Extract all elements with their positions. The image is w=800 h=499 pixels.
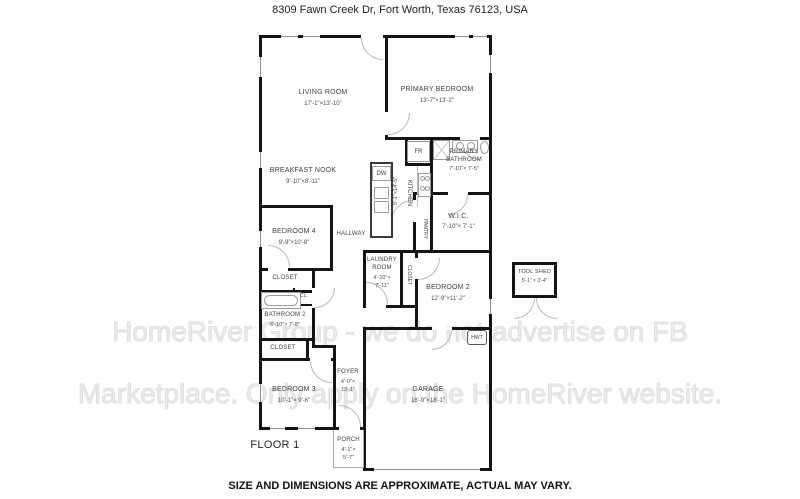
door-arc bbox=[315, 288, 335, 308]
burner-icon bbox=[425, 176, 430, 181]
window bbox=[455, 35, 469, 38]
room-label-laundry: LAUNDRY ROOM bbox=[362, 256, 402, 272]
cabinet bbox=[374, 187, 389, 199]
door-arc bbox=[268, 245, 290, 267]
room-dims-bathroom2: 6'-10"× 7'-8" bbox=[256, 321, 314, 329]
room-label-breakfast-nook: BREAKFAST NOOK bbox=[253, 166, 353, 177]
watermark-line1: HomeRiver Group - we do not advertise on… bbox=[112, 316, 688, 347]
door-arc bbox=[361, 38, 383, 60]
room-dims-porch: 4'-1"× 5'-7" bbox=[333, 446, 364, 463]
door-gap bbox=[366, 305, 386, 308]
garage-door bbox=[374, 468, 480, 471]
room-dims-wic: 7'-10"× 7'-1" bbox=[430, 223, 487, 232]
bathtub-inner bbox=[264, 295, 298, 306]
door-gap bbox=[268, 268, 288, 271]
room-dims-primary-bedroom: 13'-7"×13'-2" bbox=[387, 97, 487, 106]
room-label-closet-bedroom3: CLOSET bbox=[259, 344, 307, 353]
room-label-garage: GARAGE bbox=[378, 385, 478, 396]
address-title: 8309 Fawn Creek Dr, Fort Worth, Texas 76… bbox=[0, 4, 800, 16]
cabinet bbox=[374, 201, 389, 213]
room-label-foyer: FOYER bbox=[334, 368, 362, 377]
room-dims-tool-shed: 5'-1" × 3'-4" bbox=[512, 278, 557, 286]
floor-label: FLOOR 1 bbox=[240, 439, 310, 451]
room-label-pantry: PANTRY bbox=[420, 212, 428, 246]
room-dims-bedroom2: 12'-9"×11'-2" bbox=[398, 295, 498, 304]
room-dims-garage: 16'-9"×18'-1" bbox=[378, 397, 478, 406]
refrigerator: FR bbox=[407, 141, 430, 162]
room-dims-breakfast-nook: 9'-10"×8'-11" bbox=[253, 178, 353, 187]
wall bbox=[489, 35, 492, 471]
room-label-primary-bathroom: PRIMARY BATHROOM bbox=[439, 148, 489, 164]
room-label-wic: W.I.C. bbox=[430, 212, 487, 223]
disclaimer-text: SIZE AND DIMENSIONS ARE APPROXIMATE, ACT… bbox=[0, 480, 800, 492]
room-dims-foyer: 4'-0"× 13'-1" bbox=[334, 378, 362, 395]
room-label-cl: CL. bbox=[295, 293, 313, 301]
wall bbox=[259, 205, 333, 208]
room-label-bedroom2: BEDROOM 2 bbox=[398, 283, 498, 294]
door-arc bbox=[388, 113, 410, 135]
dishwasher: DW bbox=[372, 166, 391, 181]
wall bbox=[363, 250, 492, 253]
door-gap bbox=[413, 200, 416, 222]
room-label-closet-bedroom4: CLOSET bbox=[259, 274, 311, 283]
window bbox=[259, 57, 262, 77]
room-label-bathroom2: BATHROOM 2 bbox=[256, 311, 314, 320]
room-dims-living: 17'-1"×13'-10" bbox=[273, 100, 373, 109]
room-label-hallway: HALLWAY bbox=[311, 230, 391, 239]
floorplan-page: 8309 Fawn Creek Dr, Fort Worth, Texas 76… bbox=[0, 0, 800, 499]
room-label-porch: PORCH bbox=[333, 436, 364, 445]
room-label-tool-shed: TOOL SHED bbox=[512, 268, 557, 277]
burner-icon bbox=[425, 186, 430, 191]
room-label-bedroom3: BEDROOM 3 bbox=[244, 385, 344, 396]
room-label-living: LIVING ROOM bbox=[273, 88, 373, 99]
room-dims-kitchen: 9'-1"×14'-5" bbox=[393, 168, 402, 214]
window bbox=[489, 55, 492, 73]
window bbox=[303, 35, 320, 38]
room-dims-bedroom4: 9'-9"×10'-8" bbox=[244, 239, 344, 248]
door-arc bbox=[418, 258, 440, 280]
room-label-primary-bedroom: PRIMARY BEDROOM bbox=[387, 85, 487, 96]
wall bbox=[312, 268, 315, 348]
room-label-kitchen: KITCHEN bbox=[403, 170, 412, 216]
window bbox=[298, 427, 315, 430]
wall bbox=[405, 163, 433, 166]
window bbox=[270, 427, 285, 430]
room-dims-laundry: 4'-10"× 7'-11" bbox=[362, 274, 402, 291]
room-dims-primary-bathroom: 7'-10"× 7'-5" bbox=[436, 165, 492, 173]
room-dims-bedroom3: 10'-1"× 9'-6" bbox=[244, 397, 344, 406]
window bbox=[281, 35, 298, 38]
window bbox=[473, 35, 487, 38]
water-heater: HWT bbox=[467, 330, 487, 345]
